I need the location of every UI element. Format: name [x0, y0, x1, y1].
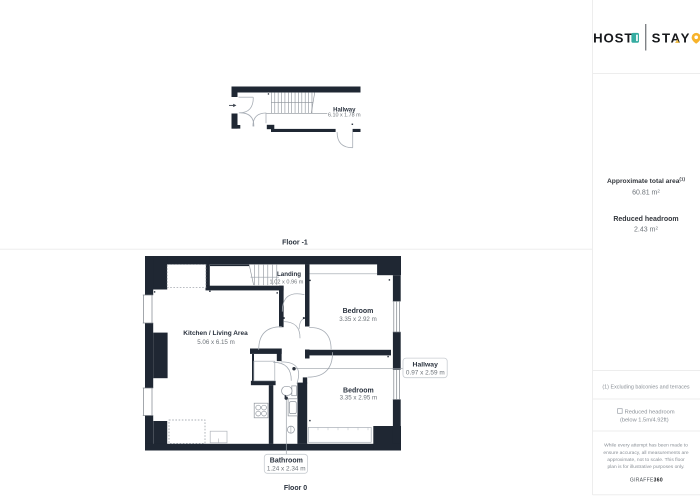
svg-text:While every attempt has been m: While every attempt has been made to — [604, 443, 688, 449]
svg-text:1.02 x 0.96 m: 1.02 x 0.96 m — [270, 280, 304, 286]
svg-text:HOST: HOST — [593, 31, 633, 46]
svg-text:0.97 x 2.59 m: 0.97 x 2.59 m — [406, 370, 445, 377]
svg-text:plan is for illustrative purpo: plan is for illustrative purposes only. — [607, 464, 684, 470]
svg-text:(below 1.5m/4.92ft): (below 1.5m/4.92ft) — [620, 417, 669, 423]
svg-text:Landing: Landing — [277, 271, 301, 278]
svg-text:Hallway: Hallway — [413, 362, 439, 369]
svg-text:Floor -1: Floor -1 — [282, 239, 308, 246]
svg-text:3.35 x 2.95 m: 3.35 x 2.95 m — [340, 395, 378, 402]
svg-text:STAY: STAY — [652, 31, 691, 46]
svg-text:approximate, not to scale. Thi: approximate, not to scale. This floor — [607, 457, 685, 463]
svg-text:(1) Excluding balconies and te: (1) Excluding balconies and terraces — [602, 384, 689, 390]
svg-text:5.06 x 6.15 m: 5.06 x 6.15 m — [197, 339, 235, 346]
svg-text:Reduced headroom: Reduced headroom — [613, 216, 678, 223]
svg-text:Kitchen / Living Area: Kitchen / Living Area — [183, 330, 248, 337]
svg-text:6.10 x 1.78 m: 6.10 x 1.78 m — [328, 113, 361, 119]
svg-text:2.43 m2: 2.43 m2 — [634, 226, 658, 234]
svg-text:Reduced headroom: Reduced headroom — [625, 410, 675, 416]
svg-text:Floor 0: Floor 0 — [284, 485, 307, 492]
svg-text:Approximate total area(1): Approximate total area(1) — [607, 177, 686, 185]
svg-text:1.24 x 2.34 m: 1.24 x 2.34 m — [267, 465, 306, 472]
svg-text:Bathroom: Bathroom — [270, 457, 303, 464]
svg-text:Bedroom: Bedroom — [343, 387, 374, 394]
svg-text:Bedroom: Bedroom — [343, 308, 374, 315]
svg-text:ensure accuracy, all measureme: ensure accuracy, all measurements are — [603, 450, 689, 456]
svg-text:GIRAFFE360: GIRAFFE360 — [630, 477, 663, 483]
svg-text:3.35 x 2.92 m: 3.35 x 2.92 m — [339, 316, 377, 323]
svg-text:60.81 m2: 60.81 m2 — [632, 188, 660, 196]
